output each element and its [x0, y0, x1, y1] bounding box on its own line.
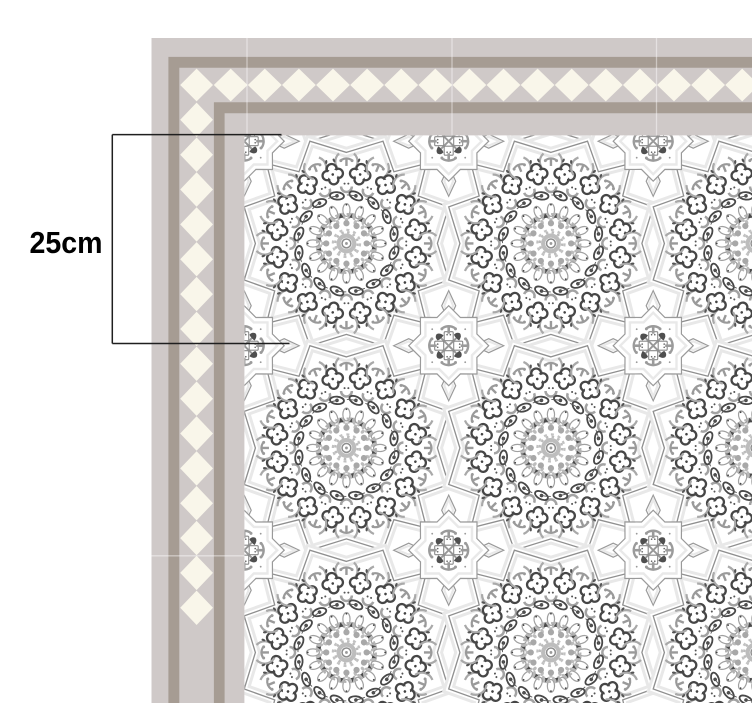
svg-text:25cm: 25cm	[30, 226, 103, 260]
